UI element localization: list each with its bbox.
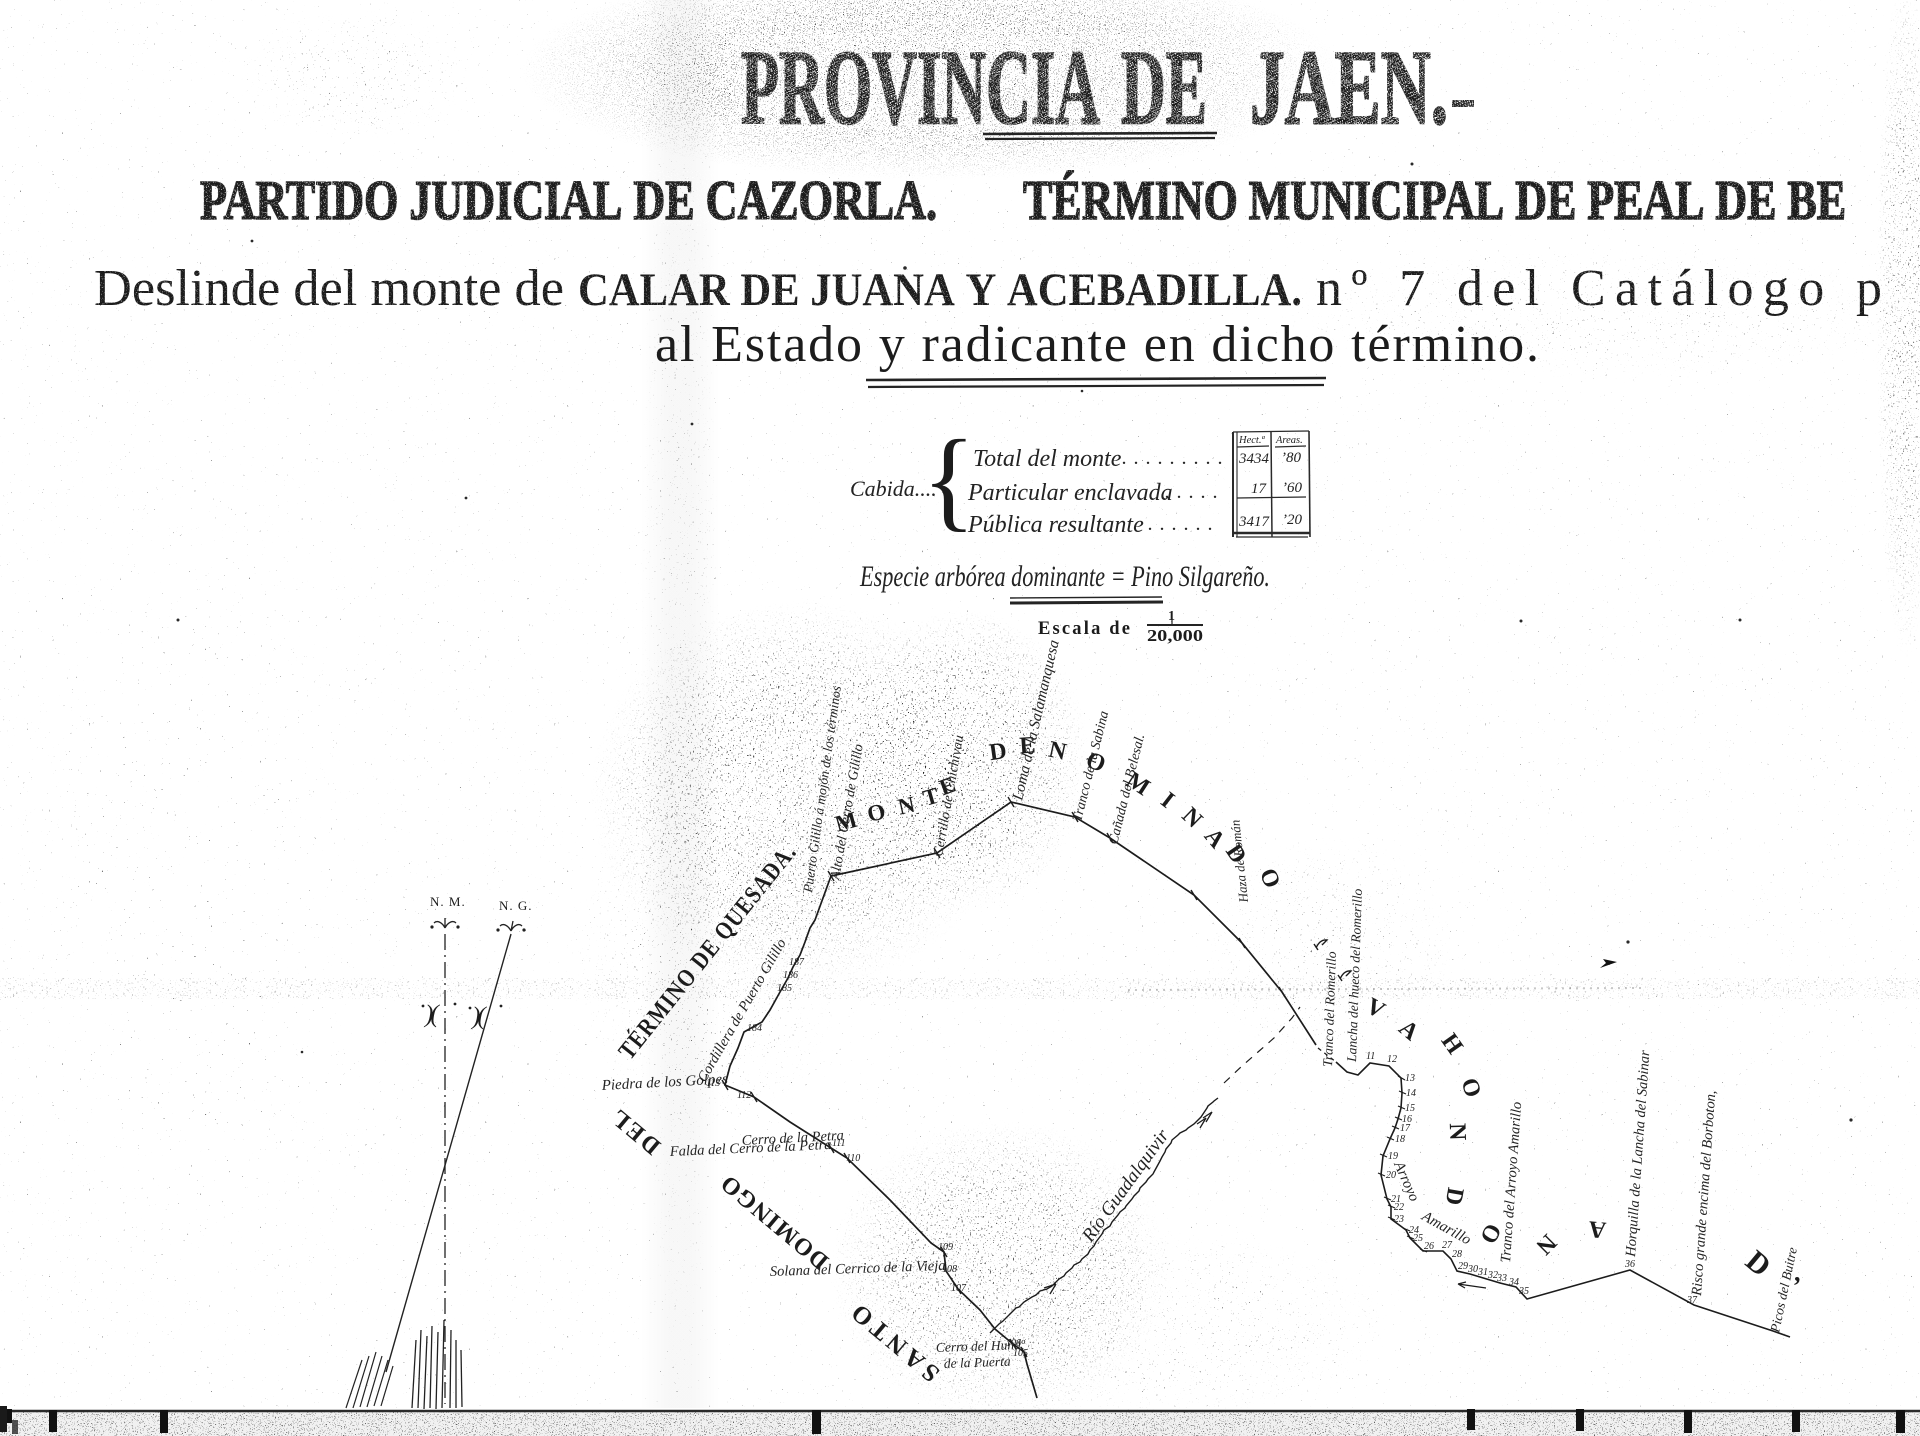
svg-text:Areas.: Areas. <box>1275 435 1303 446</box>
svg-text:185: 185 <box>777 983 792 994</box>
svg-text:’80: ’80 <box>1281 450 1301 466</box>
svg-text:29: 29 <box>1458 1261 1468 1272</box>
svg-text:11: 11 <box>1366 1051 1375 1062</box>
svg-text:N. M.: N. M. <box>430 894 466 909</box>
svg-text:22: 22 <box>1394 1202 1404 1213</box>
svg-text:Pública resultante: Pública resultante <box>967 512 1144 538</box>
svg-text:’20: ’20 <box>1282 512 1302 528</box>
svg-text:36: 36 <box>1624 1259 1635 1270</box>
svg-text:Especie arbórea dominante = Pi: Especie arbórea dominante = Pino Silgare… <box>859 560 1270 593</box>
svg-text:28: 28 <box>1452 1249 1462 1260</box>
svg-text:A: A <box>1587 1215 1607 1242</box>
svg-text:111: 111 <box>832 1138 846 1149</box>
svg-text:N: N <box>1444 1123 1471 1142</box>
svg-text:18: 18 <box>1395 1134 1405 1145</box>
svg-text:109: 109 <box>938 1242 953 1253</box>
svg-text:34: 34 <box>1508 1277 1519 1288</box>
svg-text:105: 105 <box>1013 1348 1028 1359</box>
svg-text:113: 113 <box>706 1078 720 1089</box>
svg-text:Particular enclavada: Particular enclavada <box>967 480 1173 506</box>
svg-text:26: 26 <box>1424 1241 1434 1252</box>
svg-text:......: ...... <box>1148 513 1220 535</box>
svg-text:15: 15 <box>1405 1103 1415 1114</box>
svg-text:35: 35 <box>1518 1286 1529 1297</box>
svg-text:13: 13 <box>1405 1073 1415 1084</box>
svg-text:N. G.: N. G. <box>499 898 533 913</box>
svg-text:33: 33 <box>1496 1273 1507 1284</box>
svg-text:19: 19 <box>1388 1151 1398 1162</box>
svg-text:.....: ..... <box>1165 481 1225 503</box>
svg-text:12: 12 <box>1387 1054 1397 1065</box>
svg-text:17: 17 <box>1251 481 1268 497</box>
svg-text:14: 14 <box>1406 1088 1416 1099</box>
svg-text:de la Puerta: de la Puerta <box>944 1354 1011 1371</box>
svg-text:107: 107 <box>951 1283 967 1294</box>
svg-text:31: 31 <box>1477 1267 1488 1278</box>
svg-text:20,000: 20,000 <box>1147 626 1203 645</box>
svg-text:3434: 3434 <box>1238 451 1270 467</box>
svg-text:20: 20 <box>1386 1170 1396 1181</box>
svg-text:Hect.ª: Hect.ª <box>1238 435 1265 446</box>
svg-text:184: 184 <box>747 1023 762 1034</box>
svg-text:3417: 3417 <box>1238 514 1271 530</box>
svg-text:37: 37 <box>1686 1295 1698 1306</box>
svg-text:112: 112 <box>737 1090 751 1101</box>
svg-text:30: 30 <box>1467 1264 1478 1275</box>
svg-text:Escala de: Escala de <box>1038 619 1134 639</box>
svg-text:al Estado y radicante en dicho: al Estado y radicante en dicho término. <box>655 316 1539 373</box>
svg-text:23: 23 <box>1394 1214 1404 1225</box>
svg-text:187: 187 <box>789 957 805 968</box>
svg-text:17: 17 <box>1400 1123 1411 1134</box>
svg-text:.........: ......... <box>1122 447 1230 469</box>
svg-text:110: 110 <box>846 1153 860 1164</box>
svg-text:D: D <box>988 738 1009 766</box>
svg-text:’60: ’60 <box>1282 480 1302 496</box>
svg-text:108: 108 <box>942 1264 957 1275</box>
svg-text:Total del monte: Total del monte <box>973 446 1122 472</box>
svg-text:25: 25 <box>1413 1233 1423 1244</box>
svg-text:186: 186 <box>783 970 798 981</box>
